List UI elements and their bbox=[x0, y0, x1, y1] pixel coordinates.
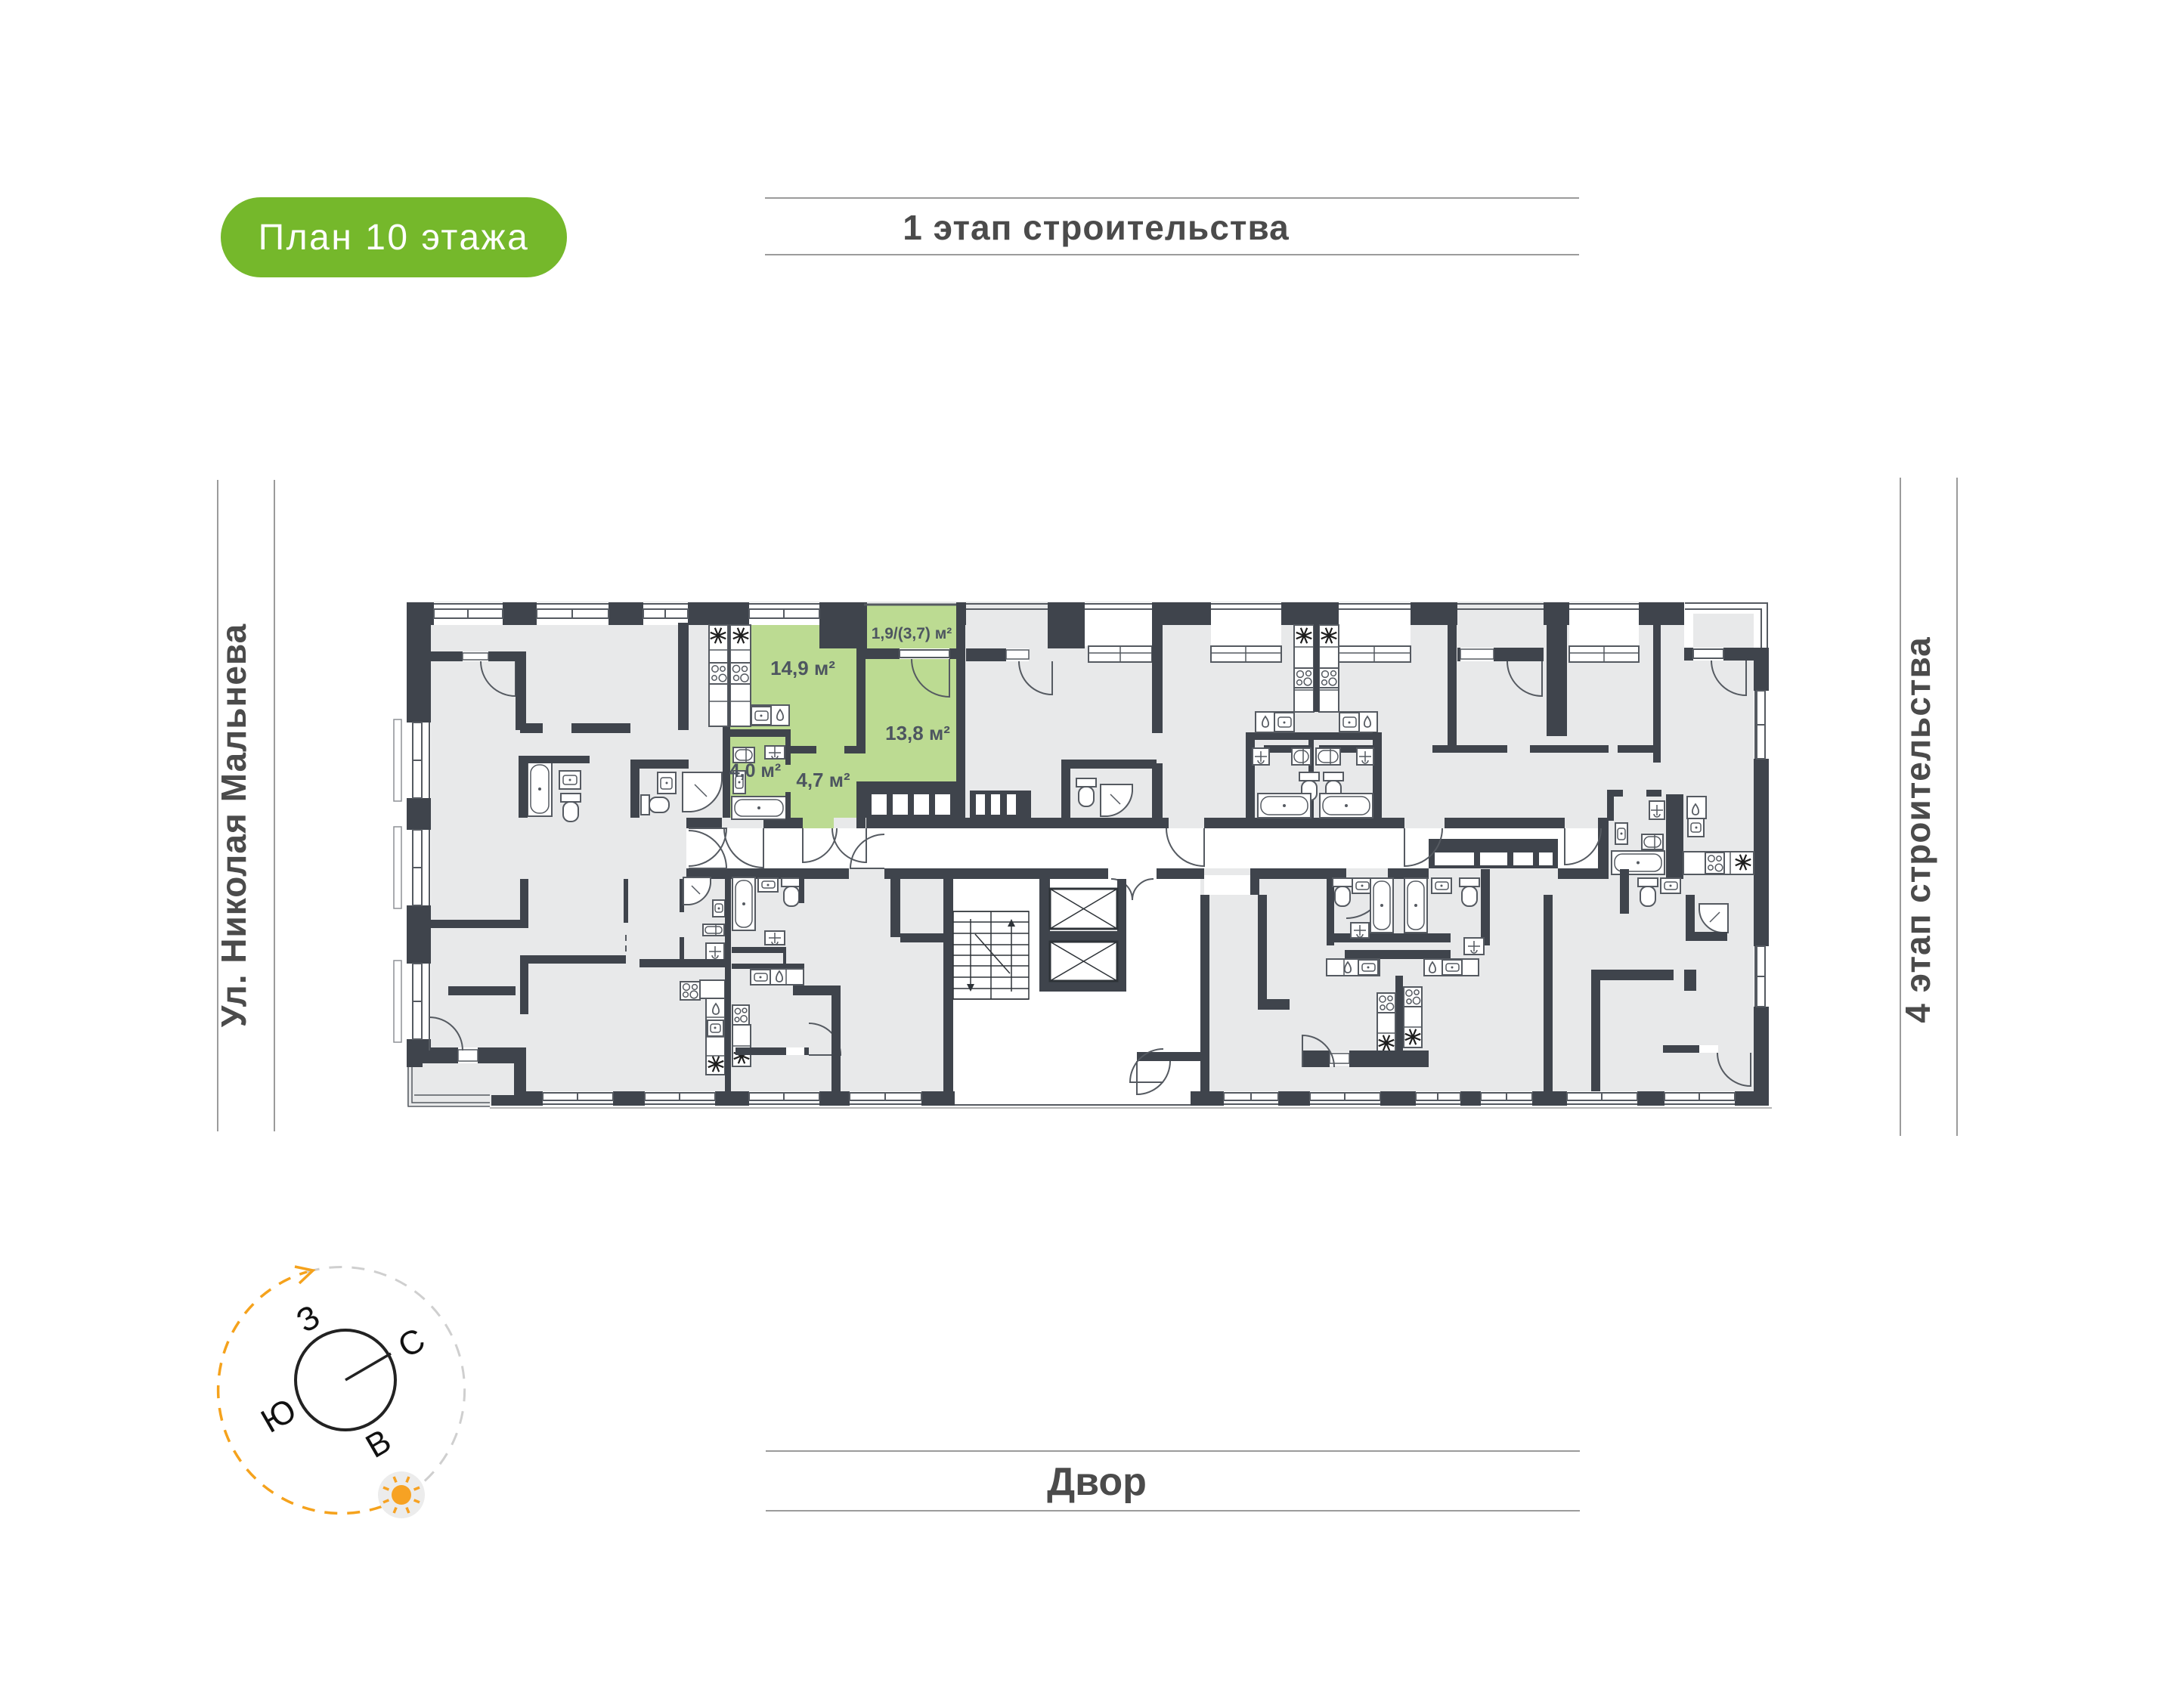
svg-text:4 этап строительства: 4 этап строительства bbox=[1898, 636, 1937, 1023]
svg-text:14,9 м²: 14,9 м² bbox=[770, 657, 835, 679]
svg-text:13,8 м²: 13,8 м² bbox=[885, 722, 950, 744]
svg-text:План 10 этажа: План 10 этажа bbox=[259, 218, 530, 258]
svg-text:1 этап строительства: 1 этап строительства bbox=[903, 208, 1289, 247]
svg-text:Ул. Николая Мальнева: Ул. Николая Мальнева bbox=[214, 623, 253, 1027]
svg-text:Двор: Двор bbox=[1047, 1460, 1147, 1504]
svg-text:4,7 м²: 4,7 м² bbox=[796, 769, 850, 791]
svg-text:4,0 м²: 4,0 м² bbox=[729, 760, 782, 781]
svg-text:1,9/(3,7) м²: 1,9/(3,7) м² bbox=[872, 625, 952, 642]
